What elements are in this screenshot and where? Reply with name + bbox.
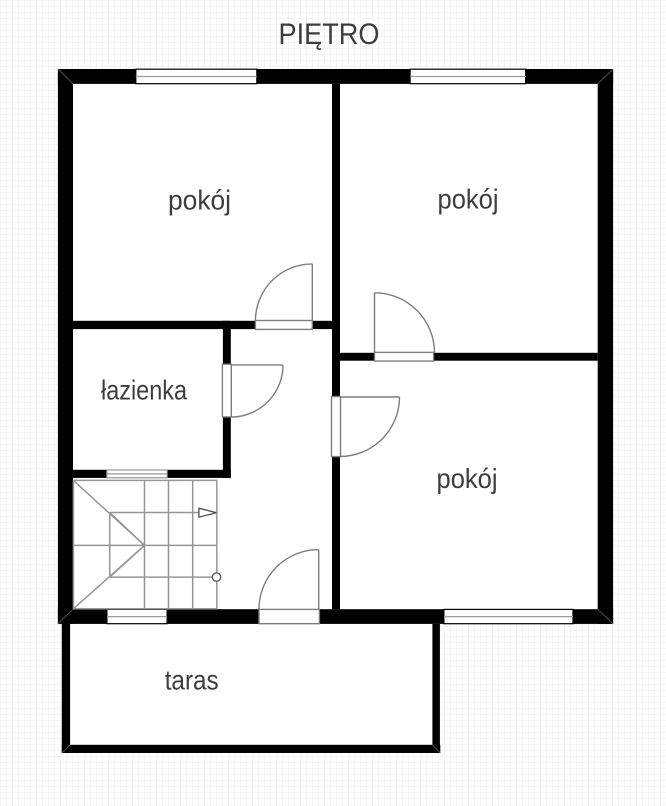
svg-text:pokój: pokój — [168, 185, 231, 216]
svg-text:taras: taras — [165, 665, 219, 696]
svg-text:pokój: pokój — [438, 184, 499, 215]
svg-text:PIĘTRO: PIĘTRO — [279, 18, 380, 51]
svg-text:pokój: pokój — [437, 463, 498, 494]
svg-text:łazienka: łazienka — [101, 375, 187, 406]
